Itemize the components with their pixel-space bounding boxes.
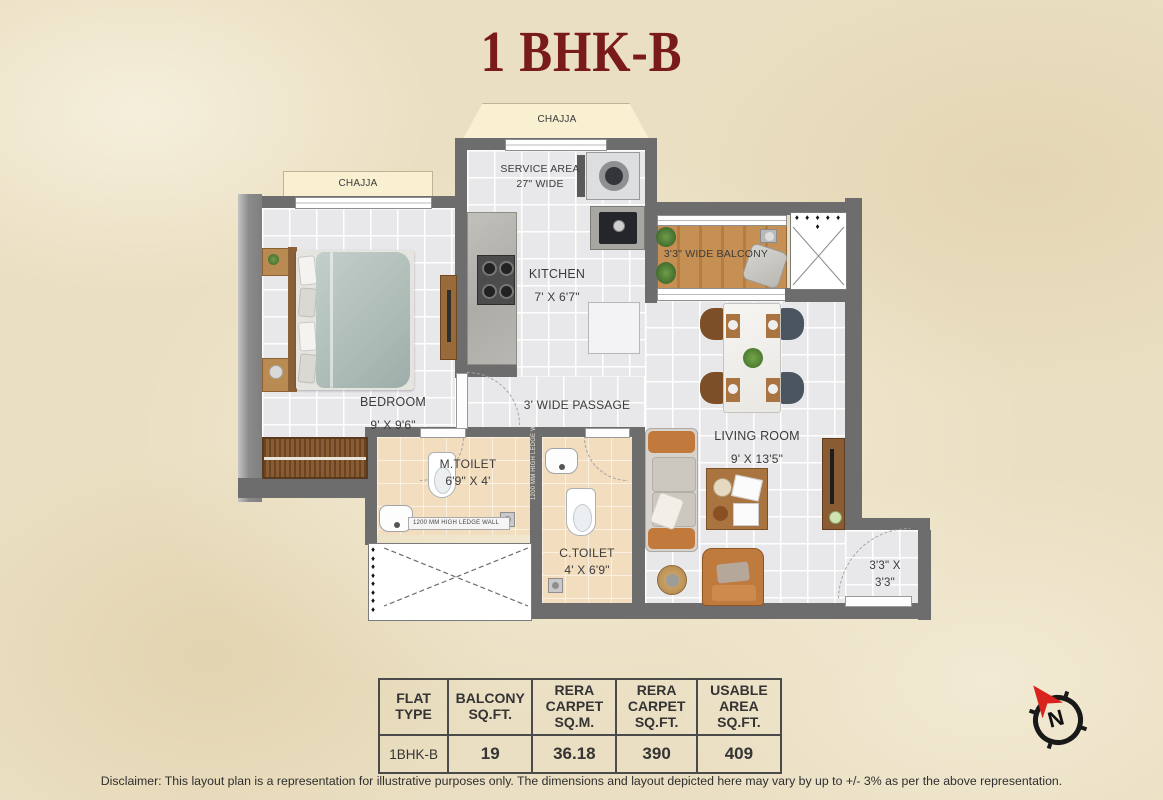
duct-toilet: ♦ ♦ ♦ ♦ ♦ ♦ ♦ ♦ [368,543,532,621]
balcony-lamp [760,229,777,243]
c-sink-drain [559,464,565,470]
wardrobe [262,437,368,479]
dining-chair-4 [780,372,804,404]
balcony-label: 3'3" WIDE BALCONY [664,247,768,262]
header-flat-type: FLAT TYPE [379,679,448,735]
armchair-pillow [716,561,750,583]
plant-icon [268,254,279,265]
m-toilet-door-leaf [420,428,466,438]
vase-icon [829,511,842,524]
value-balcony-sqft: 19 [448,735,532,773]
header-rera-carpet-sqft: RERA CARPET SQ.FT. [616,679,696,735]
c-toilet-sink [545,448,578,474]
floor-plan-page: { "title": "1 BHK-B", "rooms": { "chajja… [0,0,1163,800]
wall-bedroom-bottom [238,478,368,498]
pillow-1 [298,255,318,286]
duct-balcony: ♦ ♦ ♦ ♦ ♦ ♦ [790,212,847,290]
plate-3 [728,384,738,394]
c-toilet-label: C.TOILET4' X 6'9" [559,545,614,580]
wall-left-outer [238,194,262,502]
compass-tick-s [1047,738,1054,749]
tv-console [822,438,845,530]
placemat-1 [726,314,740,338]
dining-chair-1 [700,308,724,340]
service-area-label: SERVICE AREA27" WIDE [500,162,579,192]
coffee-table [706,468,768,530]
area-table-header-row: FLAT TYPE BALCONY SQ.FT. RERA CARPET SQ.… [379,679,781,735]
faucet-icon [613,220,625,232]
c-toilet-door-leaf [585,428,630,438]
value-flat-type: 1BHK-B [379,735,448,773]
ledge-wall-strip: 1200 MM HIGH LEDGE WALL [408,517,510,530]
sofa [645,428,698,552]
armchair-seat [712,585,756,601]
placemat-3 [726,378,740,402]
passage-label: 3' WIDE PASSAGE [524,397,630,414]
bowl-2 [713,506,728,521]
centerpiece-plant-icon [743,348,763,368]
wall-below-duct [785,288,845,302]
disclaimer-text: Disclaimer: This layout plan is a repres… [0,774,1163,788]
pillow-4 [298,353,318,384]
bowl-1 [713,478,732,497]
dresser-mirror [447,290,451,342]
area-table: FLAT TYPE BALCONY SQ.FT. RERA CARPET SQ.… [378,678,782,774]
lamp-circle [765,232,774,241]
value-usable-area-sqft: 409 [697,735,781,773]
area-table-value-row: 1BHK-B 19 36.18 390 409 [379,735,781,773]
compass-tick-e [1076,724,1087,731]
m-sink-drain [394,522,400,528]
service-window [505,139,607,151]
c-drain-circle [552,582,559,589]
kitchen-label: KITCHEN7' X 6'7" [529,262,585,308]
louver-dots-col-icon: ♦ ♦ ♦ ♦ ♦ ♦ ♦ ♦ [371,546,377,614]
placemat-2 [766,314,780,338]
compass-icon: N [1024,686,1092,754]
value-rera-carpet-sqft: 390 [616,735,696,773]
plate-4 [768,384,778,394]
tray-2 [733,503,759,526]
plate-1 [728,320,738,330]
compass-tick-w [1029,709,1040,716]
basket-decor [666,574,679,587]
living-room-label: LIVING ROOM9' X 13'5" [714,424,800,470]
bedroom-window [295,197,432,209]
sofa-cushion-bottom [648,528,695,549]
duvet-fold [330,252,333,388]
washing-machine [586,152,640,200]
balcony-plant-2 [656,262,676,284]
value-rera-carpet-sqm: 36.18 [532,735,616,773]
wall-right-outer-upper [845,198,862,530]
stove [477,255,515,305]
nightstand-top [262,248,290,276]
c-toilet-wc [566,488,596,536]
burner-3 [482,284,497,299]
side-basket-table [657,565,687,595]
placemat-4 [766,378,780,402]
dining-table [723,303,781,413]
tv-icon [830,449,834,504]
sofa-seat-1 [652,457,696,492]
header-balcony-sqft: BALCONY SQ.FT. [448,679,532,735]
balcony-window-top [657,215,787,226]
washer-drum-inner [605,167,623,185]
chajja-top-label: CHAJJA [538,113,577,128]
burner-1 [482,261,497,276]
bedroom-dresser [440,275,457,360]
m-toilet-label: M.TOILET6'9" X 4' [440,456,497,491]
balcony-plant-1 [656,227,676,247]
balcony-slider-door [657,288,787,301]
wall-ctoilet-right [632,437,645,603]
c-wc-bowl [573,504,592,532]
dining-chair-3 [780,308,804,340]
bedroom-label: BEDROOM9' X 9'6" [360,390,426,436]
fridge [588,302,640,354]
pillow-2 [298,287,317,317]
c-toilet-drain [548,578,563,593]
ledge-wall-label-v: 1200 MM HIGH LEDGE WALL [531,414,537,500]
nightstand-bottom [262,358,290,392]
chajja-left-label: CHAJJA [339,177,378,192]
sink-counter [590,206,645,250]
armchair [702,548,764,606]
page-title: 1 BHK-B [87,18,1076,85]
entry-door-leaf [845,596,912,607]
lamp-icon [269,365,283,379]
burner-2 [499,261,514,276]
compass-tick-n [1062,691,1069,702]
plate-2 [768,320,778,330]
burner-4 [499,284,514,299]
bedroom-door-leaf [456,373,468,429]
pillow-3 [298,321,317,351]
header-rera-carpet-sqm: RERA CARPET SQ.M. [532,679,616,735]
header-usable-area-sqft: USABLE AREA SQ.FT. [697,679,781,735]
tray-1 [731,474,763,501]
ledge-wall-label-h: 1200 MM HIGH LEDGE WALL [413,520,499,526]
sofa-cushion-top [648,431,695,453]
bed [296,250,414,390]
wardrobe-track [264,457,366,460]
entry-dim-label: 3'3" X 3'3" [869,558,900,591]
wall-kitchen-right [645,138,657,303]
dining-chair-2 [700,372,724,404]
